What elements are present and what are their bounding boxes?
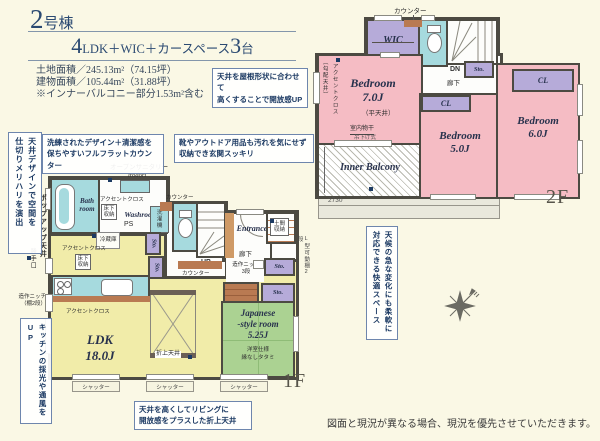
divider: [28, 31, 296, 32]
window: [577, 84, 583, 116]
window: [293, 316, 299, 352]
window: [577, 140, 583, 174]
burner: [64, 281, 71, 288]
counter-2f-label: カウンター: [394, 8, 427, 16]
flat-ceiling-label: （平天井）: [362, 110, 395, 118]
callout-oriage-ceiling: 天井を高くしてリビングに 開放感をプラスした折上天井: [134, 401, 252, 430]
counter-under-stairs: [178, 261, 222, 269]
tatami-spec-label: 洋室仕様 縁なしタタミ: [238, 346, 278, 363]
window: [430, 194, 476, 200]
washer-label: 洗濯機: [155, 209, 162, 229]
compass-icon: [440, 286, 480, 326]
room-cl-bed5: CL: [421, 95, 471, 112]
accent-cloth-ldk-label: アクセントクロス: [66, 309, 110, 316]
room-sto-b: Sto.: [148, 256, 164, 279]
counter-front: [51, 296, 150, 302]
divider: [28, 60, 296, 61]
connector-dot: [188, 355, 192, 359]
room-sto-d: Sto.: [261, 283, 295, 303]
bedroom5-name: Bedroom 5.0J: [430, 130, 490, 156]
niche: [45, 294, 53, 312]
ldk-name: LDK 18.0J: [70, 332, 130, 363]
stairs-dn-label: DN: [450, 66, 460, 74]
burner: [57, 281, 64, 288]
connector-dot: [92, 234, 96, 238]
floor-label-1f: 1F: [283, 370, 306, 393]
room-sto-2f: Sto.: [464, 61, 494, 78]
plan-car-count: 3: [230, 33, 241, 58]
deck-rail-line: [319, 205, 499, 206]
oshiire-closet: [223, 282, 259, 303]
plan-tail: 台: [241, 42, 254, 56]
connector-dot: [369, 187, 373, 191]
toilet-tank-icon: [179, 210, 192, 218]
oriage-bar: [150, 290, 196, 295]
balcony-note: ※インナーバルコニー部分1.53m²含む: [36, 89, 204, 101]
land-area: 土地面積／245.13m²（74.15坪）: [36, 65, 177, 77]
toilet-bowl-icon: [427, 33, 442, 53]
tick: [413, 15, 414, 20]
callout-flat-counter: 洗練されたデザイン＋清潔感を 保ちやすいフルフラットカウンター: [42, 134, 164, 174]
hallway-1f-label: 廊下: [239, 251, 252, 259]
japanese-room-name: Japanese -style room 5.25J: [226, 308, 290, 340]
accent-cloth-washroom-label: アクセントクロス: [100, 197, 144, 204]
counter-under-stairs-label: カウンター: [182, 271, 210, 278]
shutter-box: シャッター: [72, 381, 120, 392]
callout-entrance-storage: 靴やアウトドア用品も汚れを気にせず 収納でき玄関スッキリ: [174, 134, 314, 163]
window: [380, 52, 400, 58]
window: [72, 374, 120, 380]
bathtub-inner: [59, 188, 69, 224]
indoor-drying-label: 室内物干: [350, 126, 374, 135]
sto-label: Sto.: [474, 66, 484, 74]
room-cl-bed6: CL: [512, 69, 574, 92]
sink-counter: [120, 180, 150, 193]
sloped-ceiling-label: （勾配天井）: [321, 59, 328, 111]
sto-label: Sto.: [274, 263, 284, 271]
underfloor-storage-kitchen: 床下 収納: [75, 254, 91, 270]
callout-weather-space: 天候の急な変化にも柔軟に 対応できる快適スペース: [366, 226, 398, 340]
sto-label: Sto.: [273, 289, 283, 297]
toilet-tank-icon: [427, 25, 441, 33]
shutter-box: シャッター: [220, 381, 268, 392]
accent-cloth-2f-label: アクセントクロス: [331, 63, 338, 121]
connector-dot: [27, 256, 31, 260]
plan-ldk-count: 4: [71, 33, 82, 58]
bedroom7-name: Bedroom 7.0J: [343, 76, 403, 105]
cl-label: CL: [441, 99, 451, 109]
sto-label: Sto.: [149, 239, 156, 249]
disclaimer-text: 図面と現況が異なる場合、現況を優先させていただきます。: [324, 419, 596, 431]
room-sto-a: Sto.: [145, 232, 161, 255]
inner-balcony-name: Inner Balcony: [326, 162, 414, 174]
dimension-2730: 2730: [328, 197, 342, 205]
floor-label-2f: 2F: [546, 186, 569, 209]
stairs-1f-treads: [198, 204, 224, 256]
counter-2f: [404, 20, 422, 27]
hallway-2f-label: 廊下: [447, 80, 460, 88]
dimension-line: [324, 147, 325, 193]
connector-dot: [336, 58, 340, 62]
genkan-step: [225, 213, 234, 258]
kitchen-sink: [101, 279, 133, 296]
ps-label: PS: [124, 221, 133, 229]
wic-label: WIC: [383, 35, 402, 47]
cl-label: CL: [538, 76, 548, 86]
callout-roof-ceiling: 天井を屋根形状に合わせて 高くすることで開放感UP: [212, 68, 308, 108]
oriage-label: 折上天井: [155, 351, 181, 358]
plan-summary: 4LDK＋WIC＋カースペース3台: [55, 33, 270, 59]
counter-washroom-label: カウンター: [166, 195, 194, 202]
connector-dot: [270, 219, 274, 223]
bath-name: Bath room: [74, 197, 100, 214]
window: [421, 15, 435, 21]
building-area: 建物面積／105.44m²（31.88坪）: [36, 77, 177, 89]
closet-rod: [372, 42, 414, 43]
bedroom6-name: Bedroom 6.0J: [506, 115, 570, 141]
callout-ceiling-zoning: 天井デザインで空間を 仕切りメリハリを演出: [8, 132, 42, 254]
balcony-door-window: [334, 140, 392, 147]
toilet-bowl-icon: [178, 218, 193, 238]
2f-south-deck: [318, 197, 500, 219]
building-unit: 号棟: [44, 16, 74, 32]
fridge-label: 冷蔵庫: [100, 237, 117, 244]
stairs-2f-treads: [448, 21, 496, 63]
oriage-cross: [150, 290, 196, 358]
sto-label: Sto.: [152, 263, 159, 273]
window: [220, 374, 268, 380]
room-sto-c: Sto.: [264, 258, 295, 276]
building-number: 2: [30, 4, 44, 34]
window: [313, 72, 320, 104]
niche: [253, 260, 264, 269]
plan-mid: LDK＋WIC＋カースペース: [82, 42, 230, 56]
floorplan-flyer: 2号棟 4LDK＋WIC＋カースペース3台 土地面積／245.13m²（74.1…: [0, 0, 600, 441]
connector-dot: [108, 178, 112, 182]
accent-cloth-kitchen-label: アクセントクロス: [62, 246, 106, 253]
window: [374, 15, 402, 21]
window: [146, 374, 194, 380]
movable-shelf-label: L型可動棚2段: [296, 236, 309, 280]
niche-shelf-label: 造作ニッチ （棚2段）: [6, 294, 46, 307]
shutter-box: シャッター: [146, 381, 194, 392]
underfloor-storage-washroom: 床下 収納: [101, 204, 117, 220]
callout-kitchen-vent: キッチンの採光や通風をUP: [20, 318, 52, 424]
burner: [57, 288, 64, 295]
